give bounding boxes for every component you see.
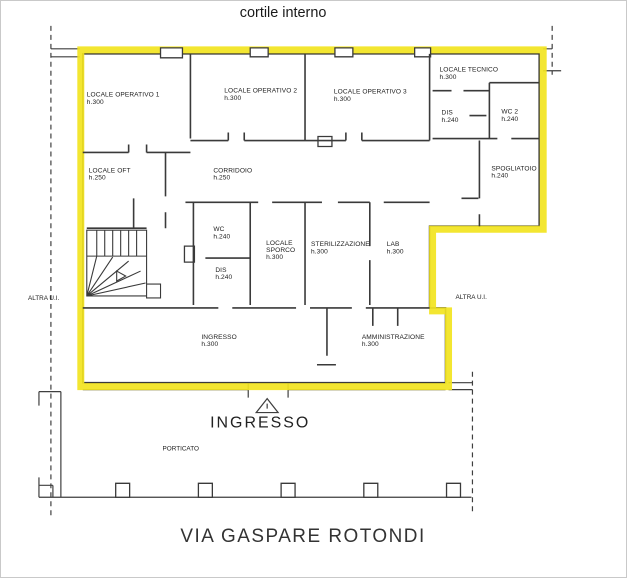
room-label-operativo2: LOCALE OPERATIVO 2 h.300 — [224, 88, 299, 102]
window-symbols — [161, 48, 431, 262]
room-label-operativo1: LOCALE OPERATIVO 1 h.300 — [87, 92, 162, 106]
room-label-oft: LOCALE OFT h.250 — [89, 167, 133, 181]
entrance-arrow-icon — [256, 399, 278, 413]
room-label-spogliatoio: SPOGLIATOIO h.240 — [491, 165, 538, 179]
room-label-dis-top: DIS h.240 — [442, 110, 459, 124]
room-label-lab: LAB h.300 — [387, 241, 404, 255]
street-label: VIA GASPARE ROTONDI — [180, 526, 425, 547]
entrance-label: INGRESSO — [210, 415, 310, 432]
room-label-sterilizzazione: STERILIZZAZIONE h.300 — [311, 241, 372, 255]
room-label-wc2: WC 2 h.240 — [501, 109, 520, 123]
interior-walls — [83, 54, 539, 365]
staircase — [87, 230, 161, 298]
courtyard-label: cortile interno — [240, 5, 327, 21]
floor-plan-drawing: cortile interno LOCALE OPERATIVO 1 h.300… — [1, 1, 626, 577]
room-label-tecnico: LOCALE TECNICO h.300 — [440, 67, 500, 81]
room-label-ingresso: INGRESSO h.300 — [201, 334, 238, 348]
room-label-amministrazione: AMMINISTRAZIONE h.300 — [362, 334, 427, 348]
floor-plan-page: cortile interno LOCALE OPERATIVO 1 h.300… — [0, 0, 627, 578]
altra-ui-left-label: ALTRA U.I. — [28, 295, 60, 302]
room-label-sporco: LOCALE SPORCO h.300 — [266, 240, 297, 261]
room-label-operativo3: LOCALE OPERATIVO 3 h.300 — [334, 89, 409, 103]
unit-exterior-wall — [83, 54, 539, 383]
room-label-dis-mid: DIS h.240 — [215, 267, 232, 281]
portico-columns — [116, 483, 461, 497]
unit-highlight-outline — [81, 50, 543, 387]
room-label-corridoio: CORRIDOIO h.250 — [213, 167, 254, 181]
porticato-label: PORTICATO — [163, 445, 199, 452]
property-line-dashed — [51, 26, 552, 516]
room-label-wc: WC h.240 — [213, 226, 230, 240]
altra-ui-right-label: ALTRA U.I. — [456, 294, 488, 301]
